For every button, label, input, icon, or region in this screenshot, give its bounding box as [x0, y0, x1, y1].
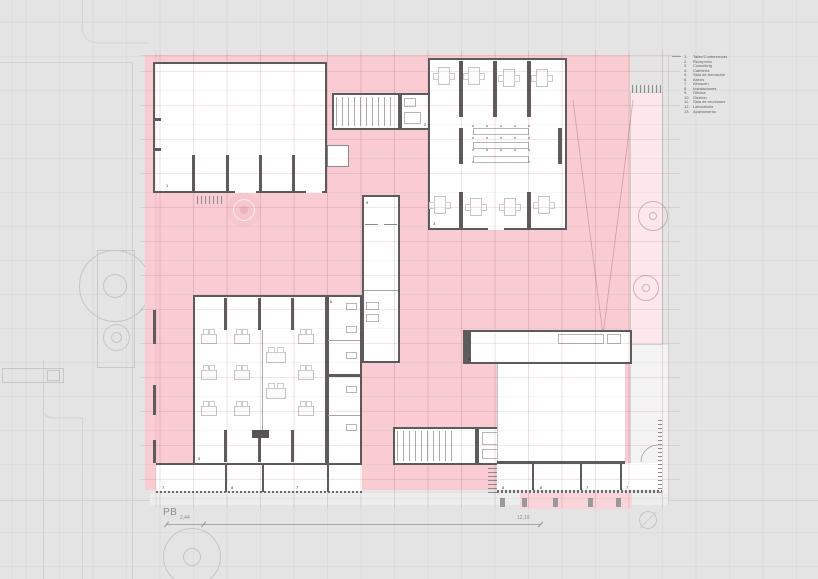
partition — [364, 290, 398, 291]
pier — [259, 155, 262, 191]
divider — [225, 465, 227, 492]
courtyard-ramp-line — [603, 100, 633, 335]
room-number: 8 — [502, 486, 504, 490]
facade-post — [616, 498, 621, 507]
room-number: 7 — [296, 486, 298, 490]
wall — [497, 461, 625, 464]
table-group — [536, 69, 548, 87]
desk-cluster — [266, 352, 286, 363]
legend-leader — [672, 56, 681, 57]
desk-cluster — [234, 370, 250, 380]
pier — [224, 298, 227, 330]
wall-stub — [153, 148, 161, 151]
desk-cluster — [298, 370, 314, 380]
room-number: 2 — [424, 123, 426, 127]
manhole-slash — [640, 512, 656, 528]
pier — [459, 192, 463, 228]
pier — [459, 128, 463, 164]
door-opening — [235, 190, 256, 193]
bar-counter — [558, 334, 604, 344]
sink — [346, 424, 357, 431]
pier — [291, 430, 294, 462]
desk-cluster — [201, 406, 217, 416]
street-corner-curve — [43, 408, 82, 418]
room-aseos — [325, 295, 362, 465]
room-number: 1 — [166, 184, 168, 188]
pier — [558, 128, 562, 164]
entry-grate — [197, 196, 223, 204]
dimension-line — [166, 524, 540, 525]
facade-post — [553, 498, 558, 507]
desk-cluster — [298, 406, 314, 416]
sink — [346, 326, 357, 333]
room-number: 9 — [366, 201, 368, 205]
pier — [224, 430, 227, 462]
stair-treads — [397, 431, 455, 461]
table-group — [470, 198, 482, 216]
fixture — [404, 98, 416, 107]
edge-wall — [153, 385, 156, 415]
desk-cluster — [201, 334, 217, 344]
open-interior — [497, 364, 625, 463]
desk-cluster — [201, 370, 217, 380]
room-oficina-spine — [362, 195, 400, 363]
desk-cluster — [234, 334, 250, 344]
facade-post — [500, 498, 505, 507]
legend-item: 13.Apartamento — [684, 110, 794, 115]
legend-label: Apartamento — [693, 110, 716, 115]
bar-counter — [607, 334, 621, 344]
pier — [527, 192, 531, 228]
stair-treads — [336, 97, 392, 126]
pier — [493, 61, 497, 117]
long-table — [473, 142, 529, 149]
legend-num: 13. — [684, 110, 693, 115]
legend: 1.Taller/Conferencias 2.Recepción 3.Cowo… — [684, 55, 794, 114]
room-number: 3 — [433, 222, 435, 226]
partition — [328, 415, 360, 416]
divider — [532, 463, 534, 490]
long-table — [473, 156, 529, 163]
door-opening — [306, 190, 322, 193]
facade-post — [588, 498, 593, 507]
divider — [327, 465, 329, 492]
facade-post — [522, 498, 527, 507]
edge-wall — [153, 440, 156, 463]
pier — [292, 155, 295, 191]
glass-partition — [262, 330, 263, 430]
floor-plan-canvas: 1 2 3 9 5 — [0, 0, 818, 579]
room-taller — [153, 62, 327, 193]
wall — [327, 374, 362, 377]
desk-cluster — [266, 388, 286, 399]
basement-stair-hatch — [488, 466, 497, 493]
long-table — [473, 128, 529, 135]
room-number: 7 — [586, 486, 588, 490]
divider — [262, 465, 264, 492]
fixture — [366, 314, 379, 322]
table-group — [438, 67, 450, 85]
courtyard-ramp-line — [573, 100, 603, 335]
divider — [580, 463, 582, 490]
edge-wall — [153, 310, 156, 344]
street-corner-curve — [82, 25, 148, 43]
sink — [346, 303, 357, 310]
room-number: 8 — [231, 486, 233, 490]
wall-stub — [153, 118, 161, 121]
room-number: 6 — [330, 300, 332, 304]
table-group — [504, 198, 516, 216]
dimension-value: 12,19 — [517, 515, 530, 521]
pier — [291, 298, 294, 330]
pier — [258, 298, 261, 330]
pier — [226, 155, 229, 191]
fixture — [404, 112, 421, 124]
sink — [346, 352, 357, 359]
east-wall-hatched — [658, 420, 662, 493]
desk-cluster — [298, 334, 314, 344]
table-group — [468, 67, 480, 85]
table-group — [434, 196, 446, 214]
door-opening — [488, 227, 504, 230]
pier — [527, 61, 531, 117]
partition — [328, 340, 360, 341]
room-number: 8 — [540, 486, 542, 490]
table-group — [503, 69, 515, 87]
table-group — [538, 196, 550, 214]
storage-strip-left — [156, 463, 362, 493]
door-swing-arc — [641, 445, 658, 462]
fixture — [366, 302, 379, 310]
pier — [192, 155, 195, 191]
equipment-block — [252, 430, 269, 438]
room-number: 5 — [198, 457, 200, 461]
closet — [327, 145, 349, 167]
door-leaf — [384, 224, 397, 225]
room-number: 4 — [468, 357, 470, 361]
dimension-value: 2,44 — [180, 515, 190, 521]
desk-cluster — [234, 406, 250, 416]
divider — [620, 463, 622, 490]
room-number: 7 — [626, 486, 628, 490]
room-number: 7 — [162, 486, 164, 490]
pier — [459, 61, 463, 117]
door-leaf — [365, 224, 378, 225]
sink — [346, 386, 357, 393]
plan-title: PB — [163, 507, 177, 518]
